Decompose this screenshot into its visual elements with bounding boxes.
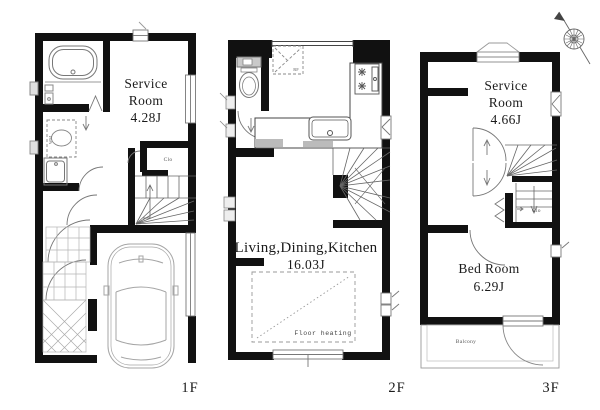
floorplan-page: WM: [0, 0, 600, 410]
floor-plan-3f: Clo Balcony Service Room 4.66J Bed Room …: [420, 12, 590, 396]
kitchen-sink-icon: [309, 117, 351, 140]
floor-plan-1f: WM: [30, 22, 199, 396]
floorplan-canvas: WM: [0, 0, 600, 410]
entrance-tiles: [43, 227, 90, 352]
1f-service-room-line2: Room: [129, 93, 164, 108]
3f-service-room-line2: Room: [489, 95, 524, 110]
floor-heating-label: Floor heating: [294, 330, 351, 337]
3f-closet-doors: [473, 128, 506, 196]
3f-top-window: [477, 43, 519, 62]
car-icon: [104, 244, 178, 368]
2f-ldk-area: 16.03J: [287, 257, 325, 272]
wash-basin-icon: [44, 158, 67, 185]
2f-ldk-name: Living,Dining,Kitchen: [235, 240, 378, 256]
2f-bottom-window: [273, 350, 343, 367]
toilet-icon: [237, 57, 261, 98]
balcony-label: Balcony: [456, 339, 476, 345]
1f-closet-label: Clo: [164, 157, 173, 163]
2f-floor-label: 2F: [388, 380, 405, 396]
washing-machine-label: WM: [48, 136, 53, 144]
3f-clo-fold-door: [470, 198, 523, 265]
3f-bed-room-area: 6.29J: [474, 279, 505, 294]
3f-bed-room-name: Bed Room: [458, 261, 519, 276]
1f-service-room-area: 4.28J: [131, 110, 162, 125]
refrigerator-label: RF: [293, 67, 299, 72]
3f-closet-label: Clo: [532, 208, 541, 214]
1f-door-marks: [46, 96, 140, 300]
3f-service-room-area: 4.66J: [491, 112, 522, 127]
staircase-1f: [135, 176, 196, 224]
1f-floor-label: 1F: [181, 380, 198, 396]
staircase-2f: [333, 148, 390, 220]
3f-service-room-line1: Service: [484, 78, 527, 93]
1f-service-room-line1: Service: [124, 76, 167, 91]
3f-floor-label: 3F: [542, 380, 559, 396]
